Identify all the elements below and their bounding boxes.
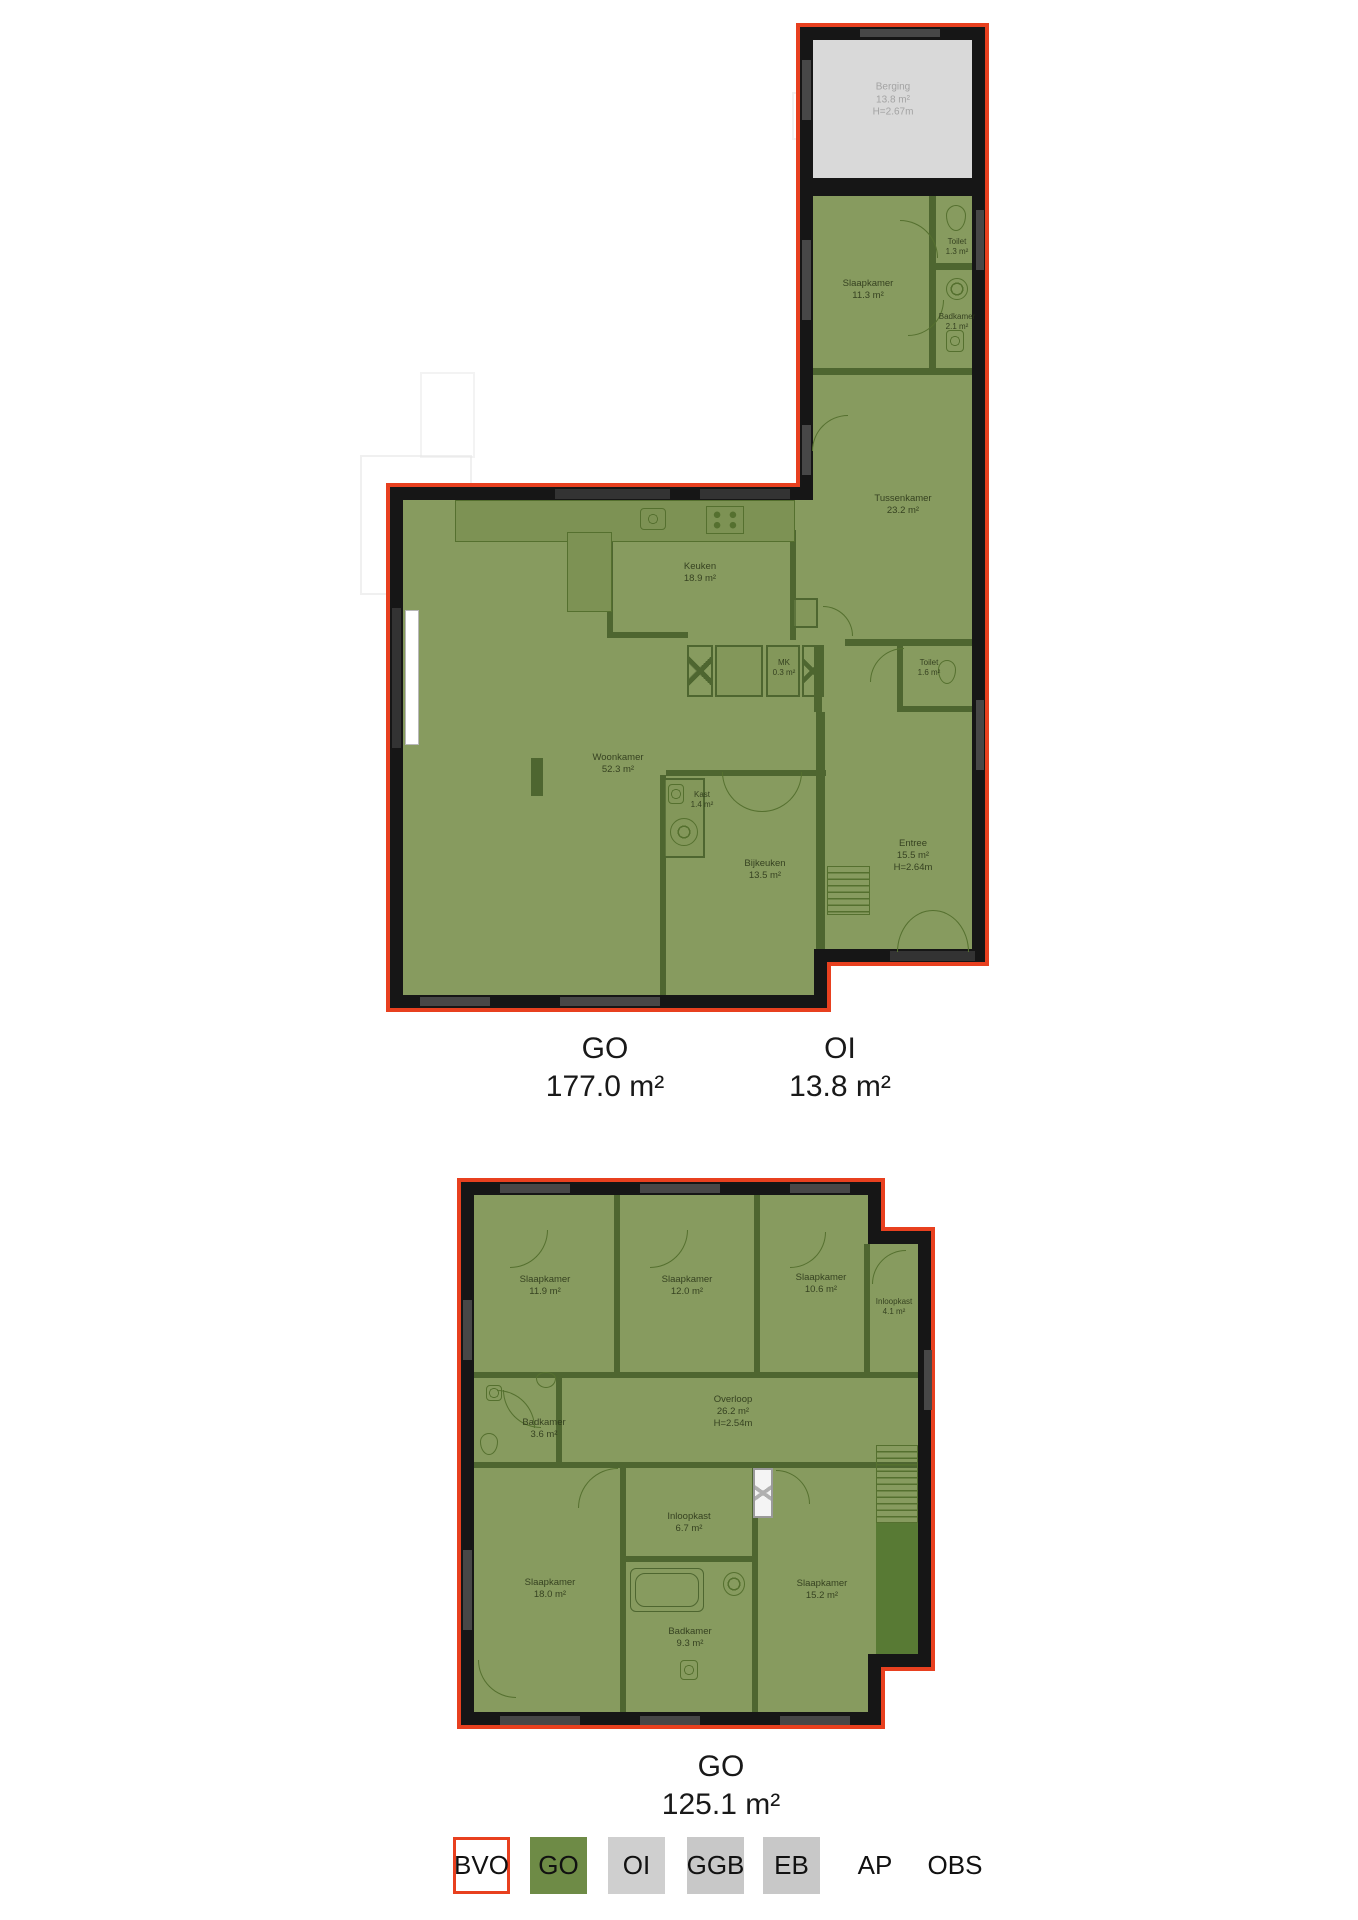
window-segment <box>860 29 940 37</box>
cupboard-box <box>715 645 763 697</box>
room-label-badkamer-2: Badkamer 9.3 m² <box>668 1626 711 1650</box>
interior-wall <box>845 639 972 646</box>
window-segment <box>500 1716 580 1725</box>
window-segment <box>790 1184 850 1193</box>
window-segment <box>463 1300 472 1360</box>
window-segment <box>555 489 670 499</box>
interior-wall <box>626 1556 752 1562</box>
room-label-slaapkamer-3: Slaapkamer 10.6 m² <box>796 1272 847 1296</box>
floor-plan-bottom: Slaapkamer 11.9 m² Slaapkamer 12.0 m² Sl… <box>0 1100 1358 1800</box>
stair-void <box>876 1523 918 1654</box>
legend-item-go: GO <box>530 1837 587 1894</box>
window-radiator <box>405 610 419 745</box>
room-label-inloopkast-1: Inloopkast 4.1 m² <box>876 1297 912 1317</box>
room-label-slaapkamer-5: Slaapkamer 15.2 m² <box>797 1578 848 1602</box>
interior-wall <box>864 1244 870 1378</box>
window-segment <box>640 1184 720 1193</box>
window-segment <box>560 997 660 1006</box>
area-total-go-top: GO 177.0 m² <box>546 1030 664 1106</box>
room-label-inloopkast-2: Inloopkast 6.7 m² <box>667 1511 710 1535</box>
window-segment <box>924 1350 932 1410</box>
interior-wall <box>754 1195 760 1378</box>
room-label-tussenkamer: Tussenkamer 23.2 m² <box>874 493 931 517</box>
shaft-icon <box>687 645 713 697</box>
shower-drain-icon <box>946 278 968 300</box>
toilet-drain-icon <box>723 1572 745 1596</box>
room-label-overloop: Overloop 26.2 m² H=2.54m <box>714 1394 753 1430</box>
interior-wall <box>816 712 825 949</box>
floorplan-page: { "colors": { "outline_red": "#e8401f", … <box>0 0 1358 1920</box>
room-fill-go <box>813 196 972 949</box>
window-segment <box>802 60 811 120</box>
window-segment <box>392 608 401 748</box>
kitchen-counter <box>455 500 795 542</box>
room-label-slaapkamer-1: Slaapkamer 11.9 m² <box>520 1274 571 1298</box>
interior-wall <box>620 1468 626 1712</box>
area-total-oi-top: OI 13.8 m² <box>789 1030 891 1106</box>
room-label-entree: Entree 15.5 m² H=2.64m <box>894 838 933 874</box>
room-label-berging: Berging 13.8 m² H=2.67m <box>873 81 914 119</box>
shaft-icon <box>802 645 824 697</box>
staircase <box>876 1445 918 1523</box>
room-label-woonkamer: Woonkamer 52.3 m² <box>592 752 643 776</box>
washing-machine-icon <box>670 818 698 846</box>
room-label-toilet: Toilet 1.3 m² <box>946 237 969 257</box>
legend-item-oi: OI <box>608 1837 665 1894</box>
room-label-slaapkamer: Slaapkamer 11.3 m² <box>843 278 894 302</box>
floor-plan-top: Berging 13.8 m² H=2.67m Slaapkamer 11.3 … <box>0 0 1358 1100</box>
sink-icon <box>946 330 964 352</box>
interior-window-icon <box>753 1468 773 1518</box>
interior-wall <box>474 1462 918 1468</box>
window-segment <box>976 210 984 270</box>
legend-item-eb: EB <box>763 1837 820 1894</box>
interior-wall <box>614 1195 620 1378</box>
interior-wall <box>929 196 936 372</box>
interior-wall <box>897 706 972 712</box>
room-label-toilet-2: Toilet 1.6 m² <box>918 658 941 678</box>
room-label-slaapkamer-2: Slaapkamer 12.0 m² <box>662 1274 713 1298</box>
window-segment <box>463 1550 472 1630</box>
window-segment <box>802 425 811 475</box>
sink-icon <box>680 1660 698 1680</box>
room-label-badkamer-1: Badkamer 3.6 m² <box>522 1417 565 1441</box>
room-label-bijkeuken: Bijkeuken 13.5 m² <box>744 858 785 882</box>
kitchen-sink-icon <box>640 508 666 530</box>
window-segment <box>500 1184 570 1193</box>
room-label-mk: MK 0.3 m² <box>773 658 796 678</box>
room-label-slaapkamer-4: Slaapkamer 18.0 m² <box>525 1577 576 1601</box>
legend: BVO GO OI GGB EB AP OBS <box>0 1837 1358 1894</box>
legend-item-ggb: GGB <box>687 1837 744 1894</box>
room-label-keuken: Keuken 18.9 m² <box>684 561 716 585</box>
ventilation-box <box>792 598 818 628</box>
legend-item-ap: AP <box>840 1837 910 1894</box>
adjacent-structure-outline <box>420 372 475 458</box>
window-segment <box>802 240 811 320</box>
area-total-go-bottom: GO 125.1 m² <box>662 1748 780 1824</box>
kitchen-cabinet <box>567 532 612 612</box>
legend-item-bvo: BVO <box>453 1837 510 1894</box>
staircase <box>827 866 870 915</box>
stove-hob-icon <box>706 506 744 534</box>
interior-wall <box>936 263 972 270</box>
interior-wall <box>813 368 972 375</box>
window-segment <box>780 1716 850 1725</box>
room-label-badkamer: Badkamer 2.1 m² <box>939 312 975 332</box>
room-label-kast: Kast 1.4 m² <box>691 790 714 810</box>
small-sink-icon <box>668 784 684 804</box>
window-segment <box>420 997 490 1006</box>
bathtub-icon <box>630 1568 704 1612</box>
window-segment <box>976 700 984 770</box>
window-segment <box>640 1716 700 1725</box>
entry-door-segment <box>890 951 975 961</box>
wall-stub <box>531 758 543 796</box>
window-segment <box>700 489 790 499</box>
legend-item-obs: OBS <box>915 1837 995 1894</box>
interior-wall <box>613 632 688 638</box>
